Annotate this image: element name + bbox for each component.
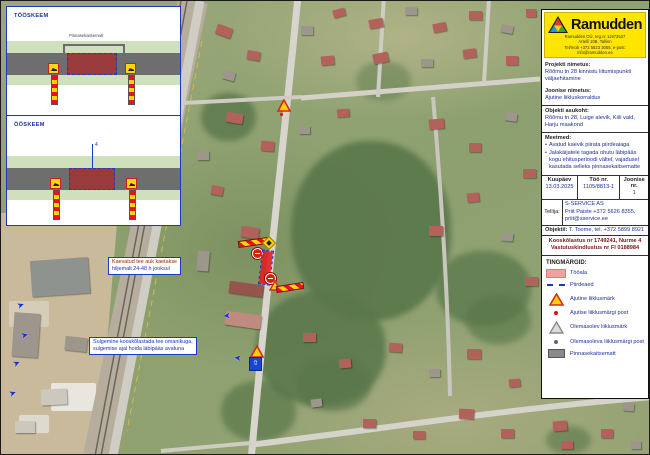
map-house — [467, 349, 481, 359]
work-number-value: 1105/8813-1 — [579, 184, 618, 191]
scheme-title: ÖÖSKEEM — [14, 122, 45, 128]
measure-item: •Jalakäijatele tagada ohutu läbipääs kog… — [545, 150, 645, 171]
mat-label: Pinnasekaitsematt — [69, 33, 103, 38]
map-house — [459, 409, 475, 420]
ground-mat-icon — [546, 349, 566, 358]
map-house — [631, 441, 641, 449]
brand-name: Ramudden — [571, 17, 642, 33]
map-house — [429, 118, 445, 129]
map-house — [321, 55, 335, 65]
map-house — [301, 26, 313, 35]
map-house — [469, 143, 481, 152]
sheet-number-label: Joonise nr. — [621, 177, 647, 189]
measures-label: Meetmed: — [545, 135, 645, 141]
map-note-restore: Kaevatud tee auk kaetakse hiljemalt 24-4… — [108, 257, 181, 275]
temporary-sign-icon — [546, 293, 566, 306]
map-house — [509, 379, 521, 388]
striped-post — [51, 75, 58, 105]
note-line: Sulgemine kooskõlastada tee omanikuga, — [93, 339, 193, 346]
sign-post-dot — [280, 113, 283, 116]
map-house — [413, 431, 425, 439]
map-house — [601, 429, 613, 438]
map-house — [30, 257, 90, 297]
map-house — [303, 333, 316, 342]
trench-work-area — [69, 168, 115, 190]
date-value: 13.03.2025 — [543, 184, 576, 191]
map-house — [523, 169, 536, 178]
approval-line: Kooskõlastus nr 1749241, Nurme 4 — [543, 238, 647, 246]
site-contact-label: Objektil: — [545, 227, 567, 233]
legend-item: Olemasolev liiklusmärk — [546, 321, 644, 334]
roadworks-board-icon — [48, 63, 59, 74]
striped-post — [53, 190, 60, 220]
sheet-number-value: 1 — [621, 190, 647, 197]
site-contact-row: Objektil: T. Toome, tel. +372 5899 8921 — [542, 226, 648, 236]
location-label: Objekti asukoht: — [545, 108, 645, 114]
company-header: Ramudden Ramudden OÜ, reg.nr 11973537 Ar… — [544, 12, 646, 58]
measures-section: Meetmed: •Avatud kaevik piirata piirdeai… — [542, 133, 648, 175]
drawing-section: Joonise nimetus: Ajutine liikluskorraldu… — [542, 86, 648, 105]
verge-band — [7, 190, 180, 200]
map-house — [261, 140, 275, 151]
roadworks-board-icon — [50, 178, 61, 189]
map-house — [64, 336, 87, 352]
dimension-line — [92, 144, 93, 168]
map-house — [429, 226, 443, 236]
map-house — [15, 421, 35, 433]
project-section: Projekti nimetus: Rõõmu tn 28 kinnistu l… — [542, 60, 648, 86]
map-note-closure: Sulgemine kooskõlastada tee omanikuga, s… — [89, 337, 197, 355]
map-house — [210, 185, 223, 196]
legend-item: Ajutine liiklusmärk — [546, 293, 644, 306]
location-value: Rõõmu tn 28, Luige alevik, Kiili vald, H… — [545, 115, 645, 129]
map-house — [506, 56, 518, 65]
scheme-title: TÖÖSKEEM — [14, 13, 48, 19]
legend: TINGMÄRGID: Tööala Piirdeaed Ajutine lii… — [542, 256, 648, 358]
company-line: Tel/mob +372 5623 3055, e-post: info@ram… — [546, 45, 644, 56]
map-house — [429, 369, 440, 377]
roadworks-sign-icon — [277, 99, 291, 112]
map-house — [196, 251, 210, 272]
map-house — [339, 358, 352, 368]
map-house — [41, 388, 68, 405]
legend-item: Olemasoleva liiklusmärgi post — [546, 339, 644, 345]
client-line: Priit Paiste +372 5626 8355, — [565, 209, 646, 216]
map-house — [421, 59, 433, 67]
map-house — [337, 108, 350, 117]
map-house — [469, 11, 482, 20]
map-house — [501, 429, 514, 438]
access-arrow-icon: ➤ — [20, 330, 30, 341]
date-label: Kuupäev — [543, 177, 576, 183]
striped-post — [128, 75, 135, 105]
map-house — [197, 151, 209, 160]
roadworks-board-icon — [125, 63, 136, 74]
project-label: Projekti nimetus: — [545, 62, 645, 68]
legend-item: Piirdeaed — [546, 282, 644, 288]
title-block-panel: Ramudden Ramudden OÜ, reg.nr 11973537 Ar… — [541, 9, 649, 399]
legend-title: TINGMÄRGID: — [546, 260, 644, 266]
legend-item: Ajutise liiklusmärgi post — [546, 310, 644, 316]
drawing-meta-table: Kuupäev 13.03.2025 Töö nr. 1105/8813-1 J… — [542, 175, 648, 200]
map-house — [526, 9, 536, 17]
scheme-nighttime: ÖÖSKEEM 4 — [7, 116, 180, 224]
map-house — [505, 112, 518, 122]
fence-dashed-icon — [546, 284, 566, 286]
existing-sign-icon — [546, 321, 566, 334]
measure-item: •Avatud kaevik piirata piirdeaiaga — [545, 142, 645, 149]
note-line: Kaevatud tee auk kaetakse — [112, 259, 177, 266]
map-house — [310, 398, 322, 407]
note-line: sulgemise ajal hoida läbipääs avatuna — [93, 346, 193, 353]
roadworks-board-icon — [126, 178, 137, 189]
client-row: Tellija: S-SERVICE AS Priit Paiste +372 … — [542, 200, 648, 226]
access-arrow-icon: ➤ — [234, 353, 242, 363]
client-line: priit@sservice.ee — [565, 216, 646, 223]
drawing-name: Ajutine liikluskorraldus — [545, 95, 645, 102]
map-house — [405, 7, 417, 15]
map-house — [525, 277, 538, 286]
map-house — [299, 126, 310, 134]
approval-box: Kooskõlastus nr 1749241, Nurme 4 Vastutu… — [542, 236, 648, 256]
map-house — [240, 226, 259, 239]
verge-band — [7, 156, 180, 168]
traffic-scheme-inset: TÖÖSKEEM Pinnasekaitsematt ÖÖSKEEM 4 — [6, 6, 181, 226]
project-name: Rõõmu tn 28 kinnistu liitumispunkti välj… — [545, 69, 645, 83]
drawing-label: Joonise nimetus: — [545, 88, 645, 94]
client-line: S-SERVICE AS — [565, 201, 646, 208]
site-contact-value: T. Toome, tel. +372 5899 8921 — [569, 227, 644, 233]
dimension-label: 4 — [95, 142, 98, 148]
scheme-worktime: TÖÖSKEEM Pinnasekaitsematt — [7, 7, 180, 115]
verge-band — [7, 75, 180, 85]
striped-post — [129, 190, 136, 220]
temporary-post-dot-icon — [546, 311, 566, 315]
work-area-swatch — [546, 269, 566, 278]
detour-info-sign: ⇧ — [249, 357, 262, 371]
map-house — [623, 403, 635, 412]
legend-item: Tööala — [546, 269, 644, 278]
work-number-label: Töö nr. — [579, 177, 618, 183]
map-house — [363, 419, 376, 428]
note-line: hiljemalt 24-48 h jooksul — [112, 266, 177, 273]
map-house — [553, 420, 568, 431]
client-label: Tellija: — [542, 200, 563, 225]
access-arrow-icon: ➤ — [223, 311, 231, 321]
map-house — [561, 441, 573, 449]
traffic-management-plan: ➤➤➤➤➤➤ ⇧ Kaevatud tee auk kaetakse hilje… — [0, 0, 650, 455]
map-house — [501, 232, 514, 241]
ramudden-logo-icon — [548, 15, 568, 34]
existing-post-dot-icon — [546, 340, 566, 344]
map-house — [389, 342, 403, 352]
map-house — [467, 192, 480, 202]
approval-line: Vastutuskindlustus nr FI 0188984 — [543, 245, 647, 253]
location-section: Objekti asukoht: Rõõmu tn 28, Luige alev… — [542, 106, 648, 132]
map-house — [462, 48, 476, 59]
legend-item: Pinnasekaitsematt — [546, 349, 644, 358]
trench-work-area — [67, 53, 117, 75]
